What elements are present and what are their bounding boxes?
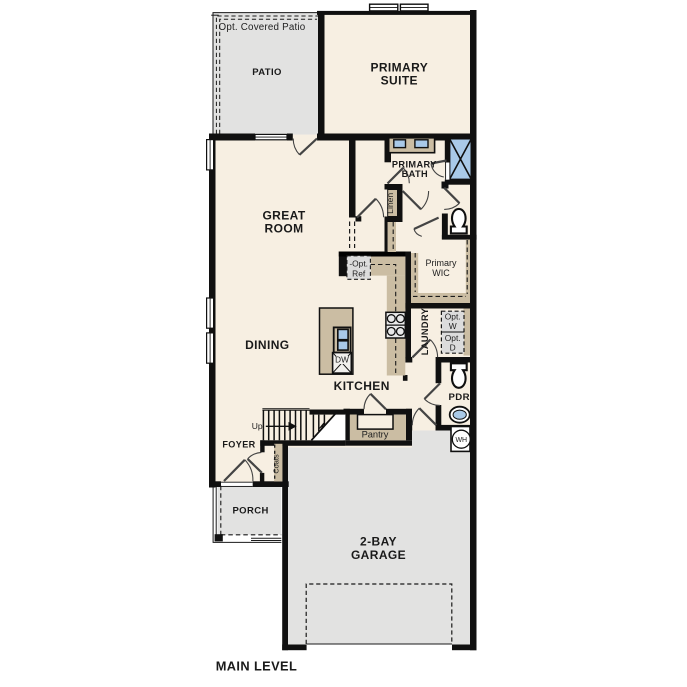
svg-text:GREAT: GREAT bbox=[262, 208, 305, 222]
svg-text:WIC: WIC bbox=[432, 268, 450, 278]
svg-text:W: W bbox=[449, 321, 457, 331]
svg-text:GARAGE: GARAGE bbox=[351, 548, 406, 562]
svg-text:ROOM: ROOM bbox=[265, 222, 304, 236]
svg-text:Primary: Primary bbox=[426, 258, 457, 268]
svg-text:Coats: Coats bbox=[272, 454, 281, 474]
svg-text:DW: DW bbox=[335, 356, 349, 365]
svg-text:KITCHEN: KITCHEN bbox=[334, 379, 390, 393]
svg-text:WH: WH bbox=[455, 437, 467, 444]
svg-text:PRIMARY: PRIMARY bbox=[392, 160, 437, 170]
svg-text:Up: Up bbox=[252, 421, 263, 431]
svg-text:Opt.: Opt. bbox=[445, 333, 461, 343]
svg-text:LAUNDRY: LAUNDRY bbox=[420, 308, 430, 355]
svg-text:Pantry: Pantry bbox=[362, 430, 389, 440]
svg-text:DINING: DINING bbox=[245, 338, 289, 352]
svg-text:2-BAY: 2-BAY bbox=[360, 534, 397, 548]
svg-text:PATIO: PATIO bbox=[252, 67, 282, 78]
svg-text:PDR: PDR bbox=[448, 392, 469, 403]
svg-text:SUITE: SUITE bbox=[381, 73, 418, 87]
svg-text:Opt. Covered Patio: Opt. Covered Patio bbox=[219, 22, 306, 33]
svg-text:Linen: Linen bbox=[385, 193, 395, 214]
svg-text:D: D bbox=[450, 342, 456, 352]
svg-text:MAIN LEVEL: MAIN LEVEL bbox=[216, 659, 298, 674]
svg-text:BATH: BATH bbox=[402, 169, 428, 179]
svg-text:-Opt.: -Opt. bbox=[349, 259, 368, 269]
svg-text:PORCH: PORCH bbox=[232, 506, 268, 517]
svg-text:FOYER: FOYER bbox=[222, 440, 255, 450]
svg-text:Ref: Ref bbox=[352, 268, 366, 278]
svg-text:Opt.: Opt. bbox=[445, 311, 461, 321]
